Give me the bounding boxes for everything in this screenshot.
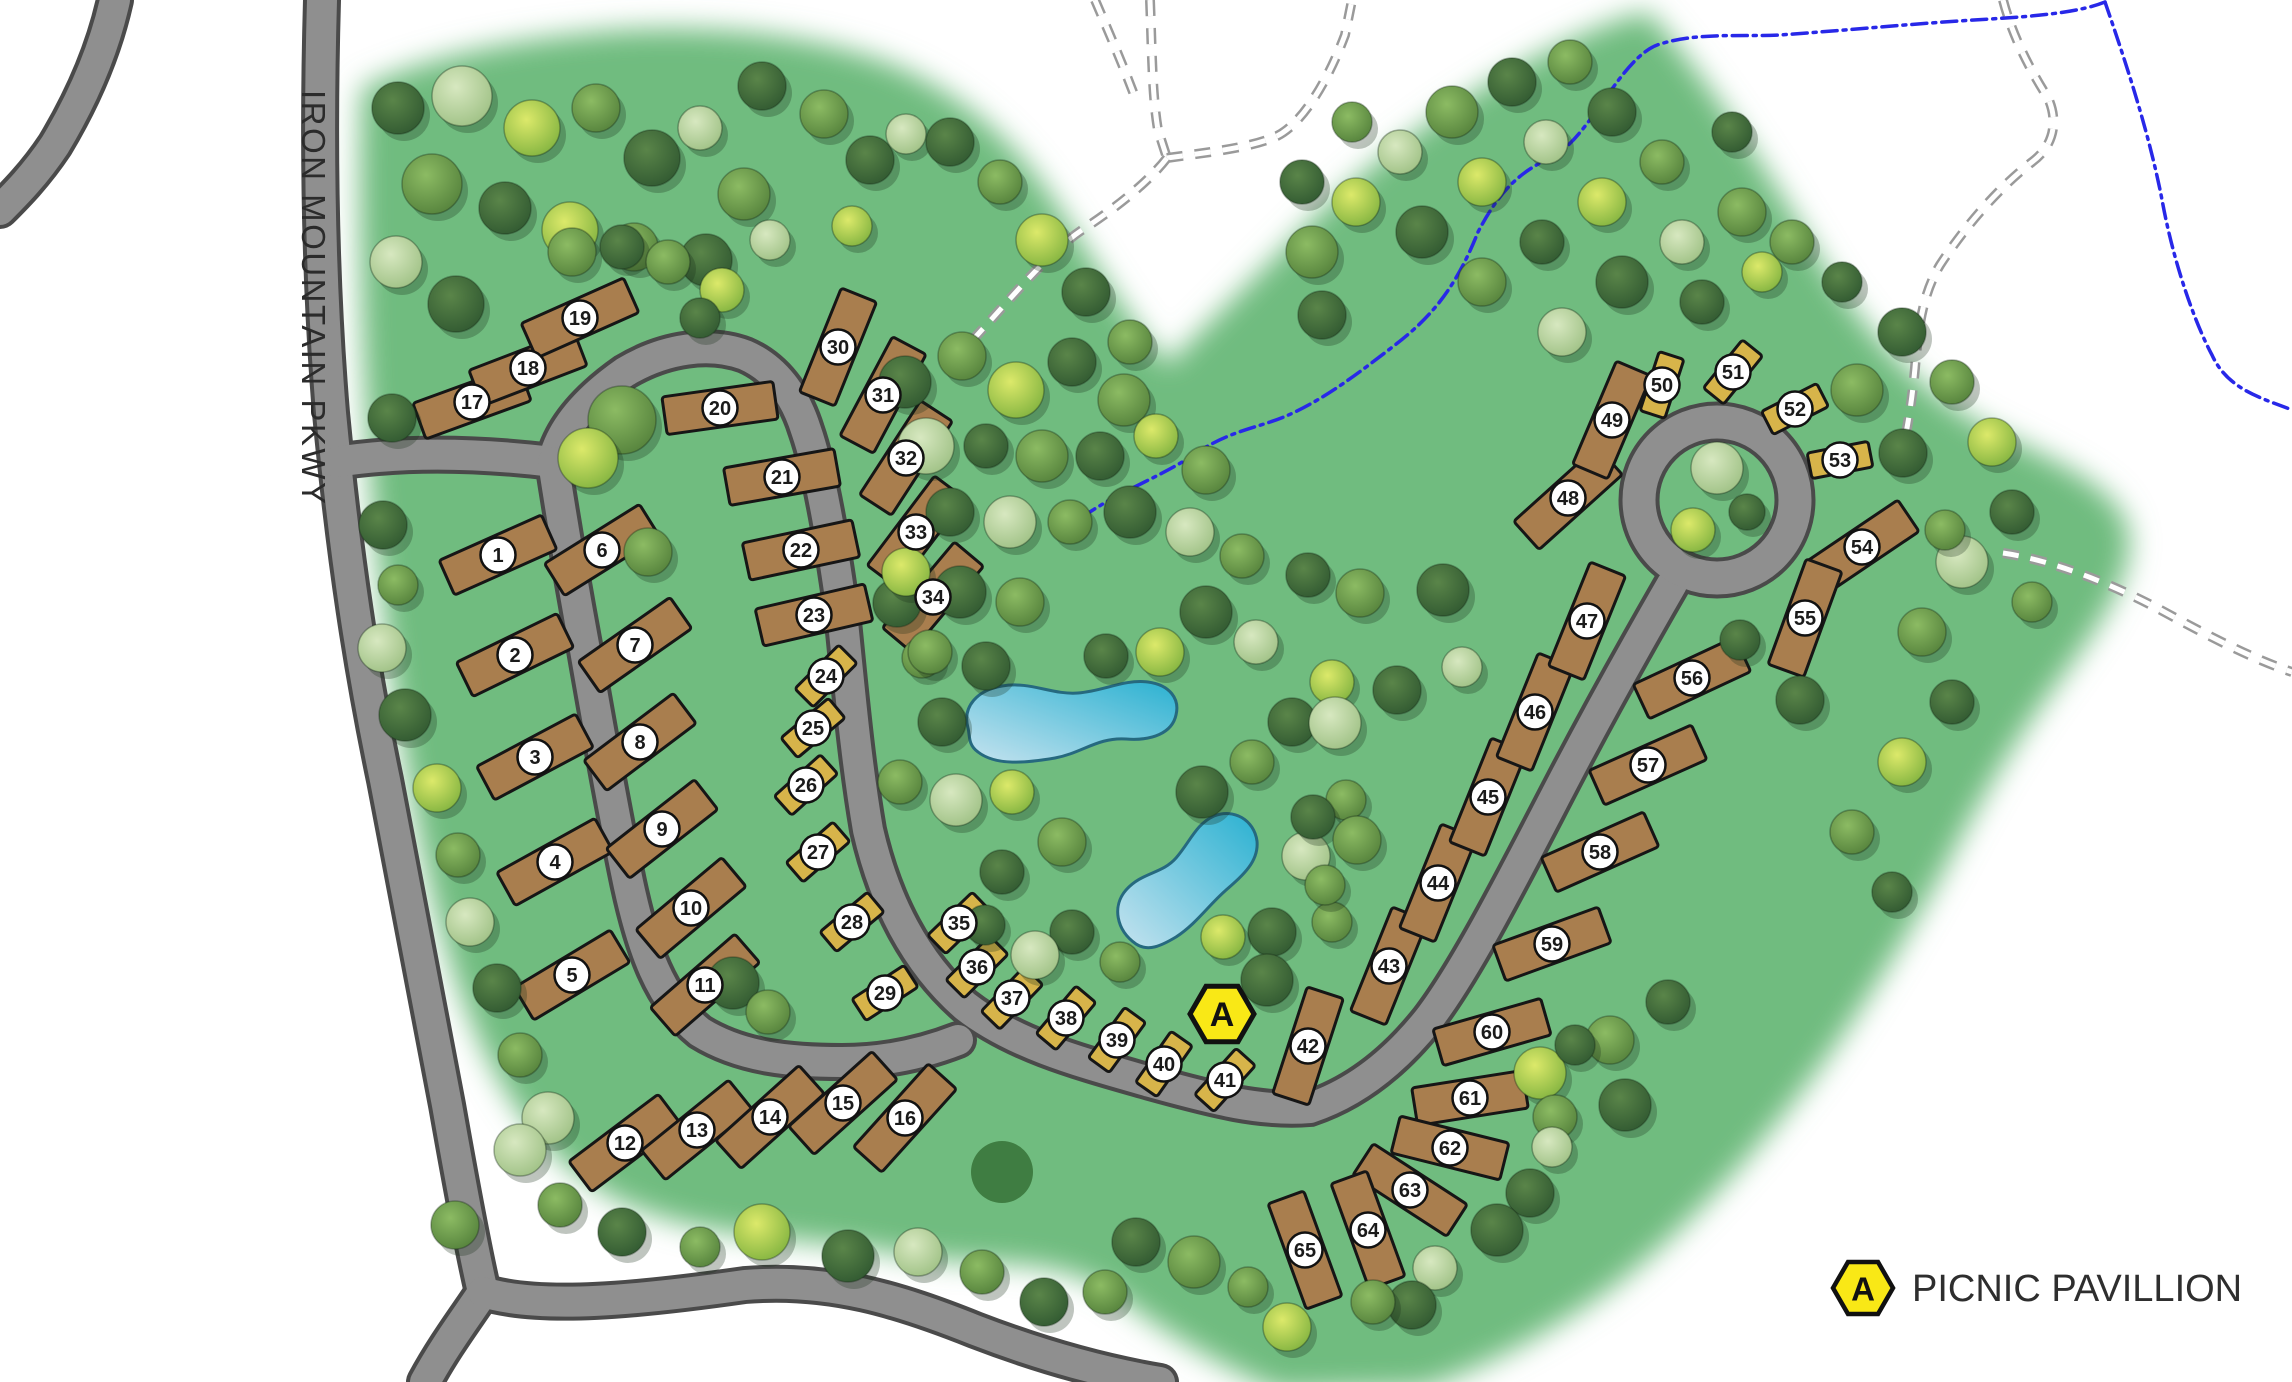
tree-canopy [738,62,786,110]
lot-number-8: 8 [623,725,658,760]
lot-number-25: 25 [796,711,831,746]
lot-number-44: 44 [1421,866,1456,901]
tree-canopy [1168,1236,1220,1288]
tree-canopy [930,774,982,826]
tree-canopy [1729,494,1765,530]
lot-number-14: 14 [753,1100,788,1135]
tree [1280,160,1330,211]
tree-canopy [962,642,1010,690]
lot-number-text: 24 [815,666,838,688]
tree-canopy [1234,620,1278,664]
tree-canopy [1588,88,1636,136]
pavilion-marker: A [1190,986,1254,1041]
lot-number-38: 38 [1049,1001,1084,1036]
lot-number-39: 39 [1100,1023,1135,1058]
tree-canopy [680,1227,720,1267]
tree-canopy [479,182,531,234]
tree-canopy [750,220,790,260]
lot-number-36: 36 [960,950,995,985]
road-name-label: IRON MOUNTAIN PKWY [295,90,332,507]
lot-number-text: 26 [795,775,817,797]
tree-canopy [1038,818,1086,866]
campground-map: 1234567891011121314151617181920212223242… [0,0,2292,1382]
lot-number-text: 65 [1294,1240,1316,1262]
tree-canopy [1878,308,1926,356]
lot-number-text: 57 [1637,755,1659,777]
lot-number-text: 38 [1055,1008,1077,1030]
tree-canopy [598,1208,646,1256]
tree-canopy [964,424,1008,468]
lot-number-20: 20 [703,391,738,426]
tree-canopy [446,898,494,946]
lot-number-53: 53 [1823,443,1858,478]
lot-number-text: 54 [1851,537,1874,559]
lot-number-35: 35 [942,906,977,941]
tree-canopy [822,1230,874,1282]
tree-canopy [431,1201,479,1249]
tree-canopy [1520,220,1564,264]
lot-number-text: 3 [529,747,540,769]
tree-canopy [572,84,620,132]
tree-canopy [1718,188,1766,236]
lot-number-54: 54 [1845,530,1880,565]
lot-number-43: 43 [1372,949,1407,984]
tree [538,1183,588,1234]
tree-canopy [832,206,872,246]
pavilion-symbol: A [1210,996,1235,1034]
lot-number-text: 37 [1001,988,1023,1010]
lot-number-text: 64 [1357,1220,1380,1242]
tree-canopy [1286,553,1330,597]
lot-number-text: 28 [841,912,863,934]
tree-canopy [1396,206,1448,258]
lot-number-text: 27 [807,842,829,864]
tree-canopy [1351,1280,1395,1324]
tree-canopy [624,130,680,186]
tree-canopy [1524,120,1568,164]
lot-number-text: 44 [1427,873,1450,895]
lot-number-18: 18 [511,351,546,386]
lot-number-15: 15 [826,1086,861,1121]
lot-number-52: 52 [1778,392,1813,427]
lot-number-30: 30 [821,330,856,365]
tree-canopy [1458,158,1506,206]
tree-canopy [1930,680,1974,724]
tree-canopy [938,332,986,380]
lot-number-text: 60 [1481,1022,1503,1044]
lot-number-text: 35 [948,913,970,935]
tree-canopy [1879,429,1927,477]
lot-number-text: 7 [629,635,640,657]
trail-path-gap [1150,0,1167,158]
tree-canopy [978,160,1022,204]
lot-number-46: 46 [1518,695,1553,730]
lot-number-text: 14 [759,1107,782,1129]
tree-canopy [1555,1025,1595,1065]
tree-canopy [1532,1127,1572,1167]
lot-number-text: 13 [686,1120,708,1142]
tree-canopy [1925,510,1965,550]
lot-number-7: 7 [618,628,653,663]
tree-canopy [1291,795,1335,839]
tree-canopy [558,428,618,488]
tree-canopy [878,760,922,804]
lot-number-55: 55 [1788,601,1823,636]
lot-number-48: 48 [1551,481,1586,516]
tree [1332,102,1378,149]
lot-number-22: 22 [784,533,819,568]
tree-canopy [746,990,790,1034]
lot-number-29: 29 [868,976,903,1011]
lot-number-63: 63 [1393,1173,1428,1208]
tree-canopy [1298,291,1346,339]
tree-canopy [1108,320,1152,364]
tree-canopy [1373,666,1421,714]
lot-number-text: 61 [1459,1088,1481,1110]
tree-canopy [1136,628,1184,676]
lot-number-text: 16 [894,1108,916,1130]
lot-number-59: 59 [1535,927,1570,962]
lot-number-62: 62 [1433,1131,1468,1166]
lot-number-28: 28 [835,905,870,940]
trail-path [1167,0,1352,158]
legend-pavilion-symbol: A [1851,1271,1875,1308]
tree-canopy [1830,810,1874,854]
tree-canopy [1201,915,1245,959]
tree-canopy [980,850,1024,894]
tree-canopy [1878,738,1926,786]
lot-number-text: 22 [790,540,812,562]
lot-number-text: 9 [656,819,667,841]
tree-canopy [1646,980,1690,1024]
lot-number-text: 62 [1439,1138,1461,1160]
tree-canopy [1309,697,1361,749]
tree-canopy [1691,442,1743,494]
tree-canopy [1968,418,2016,466]
lot-number-16: 16 [888,1101,923,1136]
tree-canopy [646,240,690,284]
tree-canopy [1166,508,1214,556]
lot-number-31: 31 [866,378,901,413]
lot-number-33: 33 [899,515,934,550]
tree-canopy [1263,1303,1311,1351]
tree-canopy [1286,226,1338,278]
lot-number-42: 42 [1291,1029,1326,1064]
lot-number-12: 12 [608,1126,643,1161]
lot-number-11: 11 [688,968,723,1003]
tree-canopy [990,770,1034,814]
lot-number-27: 27 [801,835,836,870]
lot-number-text: 4 [549,852,561,874]
lot-number-text: 53 [1829,450,1851,472]
lot-number-23: 23 [797,598,832,633]
lot-number-text: 49 [1601,410,1623,432]
tree-canopy [548,228,596,276]
tree-canopy [1770,220,1814,264]
tree-canopy [1640,140,1684,184]
lot-number-41: 41 [1208,1063,1243,1098]
tree-canopy [1548,40,1592,84]
legend: A PICNIC PAVILLION [1833,1262,2242,1314]
lot-number-text: 25 [802,718,824,740]
tree-canopy [1016,214,1068,266]
tree-canopy [886,114,926,154]
tree-canopy [378,565,418,605]
tree-canopy [718,168,770,220]
tree-canopy [494,1124,546,1176]
tree-canopy [1712,112,1752,152]
lot-number-61: 61 [1453,1081,1488,1116]
tree-canopy [1599,1079,1651,1131]
lot-number-text: 45 [1477,787,1499,809]
lot-number-56: 56 [1675,661,1710,696]
tree-canopy [1048,500,1092,544]
lot-number-5: 5 [555,958,590,993]
lot-number-text: 23 [803,605,825,627]
tree-canopy [1332,102,1372,142]
tree-canopy [428,276,484,332]
lot-number-50: 50 [1645,368,1680,403]
tree-canopy [1180,586,1232,638]
lot-number-text: 32 [895,448,917,470]
lot-number-text: 1 [492,545,503,567]
tree-canopy [1228,1267,1268,1307]
tree-canopy [402,154,462,214]
lot-number-57: 57 [1631,748,1666,783]
tree-canopy [436,833,480,877]
lot-number-21: 21 [765,460,800,495]
lot-number-9: 9 [645,812,680,847]
lot-number-text: 5 [566,965,577,987]
tree-canopy [1671,508,1715,552]
tree-canopy [1083,1270,1127,1314]
lot-number-text: 58 [1589,842,1611,864]
site-plan: 1234567891011121314151617181920212223242… [0,0,2292,1382]
tree-canopy [680,298,720,338]
lot-number-2: 2 [498,638,533,673]
lot-number-text: 41 [1214,1070,1236,1092]
tree-canopy [1100,942,1140,982]
lot-number-24: 24 [809,659,844,694]
tree-canopy [600,225,644,269]
lot-number-text: 48 [1557,488,1579,510]
tree-canopy [1471,1204,1523,1256]
tree-canopy [2012,582,2052,622]
tree-canopy [1426,86,1478,138]
tree-canopy [1578,178,1626,226]
lot-number-60: 60 [1475,1015,1510,1050]
lot-number-text: 33 [905,522,927,544]
lot-number-34: 34 [916,580,951,615]
lot-number-text: 36 [966,957,988,979]
tree-canopy [538,1183,582,1227]
tree [1020,1278,1074,1333]
tree-canopy [1596,256,1648,308]
lot-number-text: 34 [922,587,945,609]
road-surface [336,455,553,463]
lot-number-text: 12 [614,1133,636,1155]
tree-canopy [359,501,407,549]
lot-number-text: 18 [517,358,539,380]
lot-number-64: 64 [1351,1213,1386,1248]
trail-path-gap [1167,0,1352,158]
lot-number-text: 63 [1399,1180,1421,1202]
trail-path-gap [1095,0,1136,100]
lot-number-text: 46 [1524,702,1546,724]
tree-canopy [1230,740,1274,784]
tree-canopy [1182,446,1230,494]
tree-canopy [1488,58,1536,106]
tree-canopy [1020,1278,1068,1326]
lot-number-text: 11 [694,975,715,997]
tree-canopy [358,624,406,672]
tree-canopy [1333,816,1381,864]
tree-canopy [372,82,424,134]
lot-number-26: 26 [789,768,824,803]
tree-canopy [1112,1218,1160,1266]
tree-canopy [918,698,966,746]
lot-number-10: 10 [674,891,709,926]
tree-canopy [1241,954,1293,1006]
lot-number-text: 43 [1378,956,1400,978]
lot-number-text: 6 [596,540,607,562]
lot-number-text: 10 [680,898,702,920]
lot-number-4: 4 [538,845,573,880]
tree-canopy [1378,130,1422,174]
lot-number-13: 13 [680,1113,715,1148]
tree-canopy [370,236,422,288]
lot-number-3: 3 [518,740,553,775]
tree-canopy [379,689,431,741]
tree-canopy [1084,634,1128,678]
lot-number-text: 15 [832,1093,854,1115]
lot-number-17: 17 [455,385,490,420]
tree-canopy [1048,338,1096,386]
lot-number-text: 51 [1722,362,1744,384]
lot-number-text: 2 [509,645,520,667]
stream-line [2105,2,2292,410]
tree-canopy [413,764,461,812]
tree-canopy [498,1033,542,1077]
tree-canopy [846,136,894,184]
tree-canopy [1011,931,1059,979]
tree-canopy [1930,360,1974,404]
tree-canopy [908,630,952,674]
tree-canopy [473,964,521,1012]
trail-path [1150,0,1167,158]
tree-canopy [1062,268,1110,316]
lot-number-text: 8 [634,732,645,754]
tree-canopy [368,394,416,442]
lot-number-text: 29 [874,983,896,1005]
tree-canopy [1248,908,1296,956]
lot-number-text: 55 [1794,608,1816,630]
grove [971,1141,1033,1203]
tree-canopy [1280,160,1324,204]
lot-number-49: 49 [1595,403,1630,438]
tree-canopy [1016,430,1068,482]
tree-canopy [1336,569,1384,617]
tree-canopy [1872,872,1912,912]
lot-number-text: 30 [827,337,849,359]
tree-canopy [1660,220,1704,264]
lot-number-37: 37 [995,981,1030,1016]
tree [680,1227,726,1274]
lot-number-40: 40 [1147,1047,1182,1082]
lot-number-text: 21 [771,467,793,489]
tree-canopy [1990,490,2034,534]
lot-number-text: 59 [1541,934,1563,956]
tree-canopy [988,362,1044,418]
tree-canopy [984,496,1036,548]
tree-canopy [1076,432,1124,480]
tree-canopy [960,1250,1004,1294]
tree-canopy [1776,676,1824,724]
tree-canopy [1220,534,1264,578]
lot-number-text: 50 [1651,375,1673,397]
tree-canopy [1831,364,1883,416]
lot-number-58: 58 [1583,835,1618,870]
tree-canopy [1417,564,1469,616]
tree-canopy [504,100,560,156]
tree-canopy [1305,865,1345,905]
tree-canopy [1538,308,1586,356]
tree-canopy [996,578,1044,626]
tree-canopy [1822,262,1862,302]
tree-canopy [1176,766,1228,818]
lot-number-1: 1 [481,538,516,573]
lot-number-47: 47 [1570,604,1605,639]
lot-number-65: 65 [1288,1233,1323,1268]
lot-number-6: 6 [585,533,620,568]
lot-number-45: 45 [1471,780,1506,815]
tree-canopy [624,528,672,576]
tree-canopy [1104,486,1156,538]
lot-number-text: 39 [1106,1030,1128,1052]
tree-canopy [1332,178,1380,226]
tree-canopy [800,90,848,138]
lot-number-32: 32 [889,441,924,476]
tree-canopy [894,1228,942,1276]
tree-canopy [1898,608,1946,656]
tree-canopy [432,66,492,126]
lot-number-text: 19 [569,308,591,330]
legend-pavilion-label: PICNIC PAVILLION [1912,1268,2242,1310]
tree-canopy [926,118,974,166]
tree-canopy [678,106,722,150]
lot-number-text: 56 [1681,668,1703,690]
tree-canopy [734,1204,790,1260]
lot-number-text: 40 [1153,1054,1175,1076]
tree-canopy [1680,280,1724,324]
lot-number-text: 47 [1576,611,1598,633]
lot-number-text: 52 [1784,399,1806,421]
lot-number-text: 17 [461,392,483,414]
lot-number-text: 31 [872,385,894,407]
tree-canopy [1442,647,1482,687]
lot-number-text: 42 [1297,1036,1319,1058]
lot-number-text: 20 [709,398,731,420]
lot-number-19: 19 [563,301,598,336]
tree-canopy [1134,414,1178,458]
tree-canopy [1720,620,1760,660]
lot-number-51: 51 [1716,355,1751,390]
tree-canopy [1458,258,1506,306]
tree [598,1208,652,1263]
site-greenspace [360,12,2130,1382]
